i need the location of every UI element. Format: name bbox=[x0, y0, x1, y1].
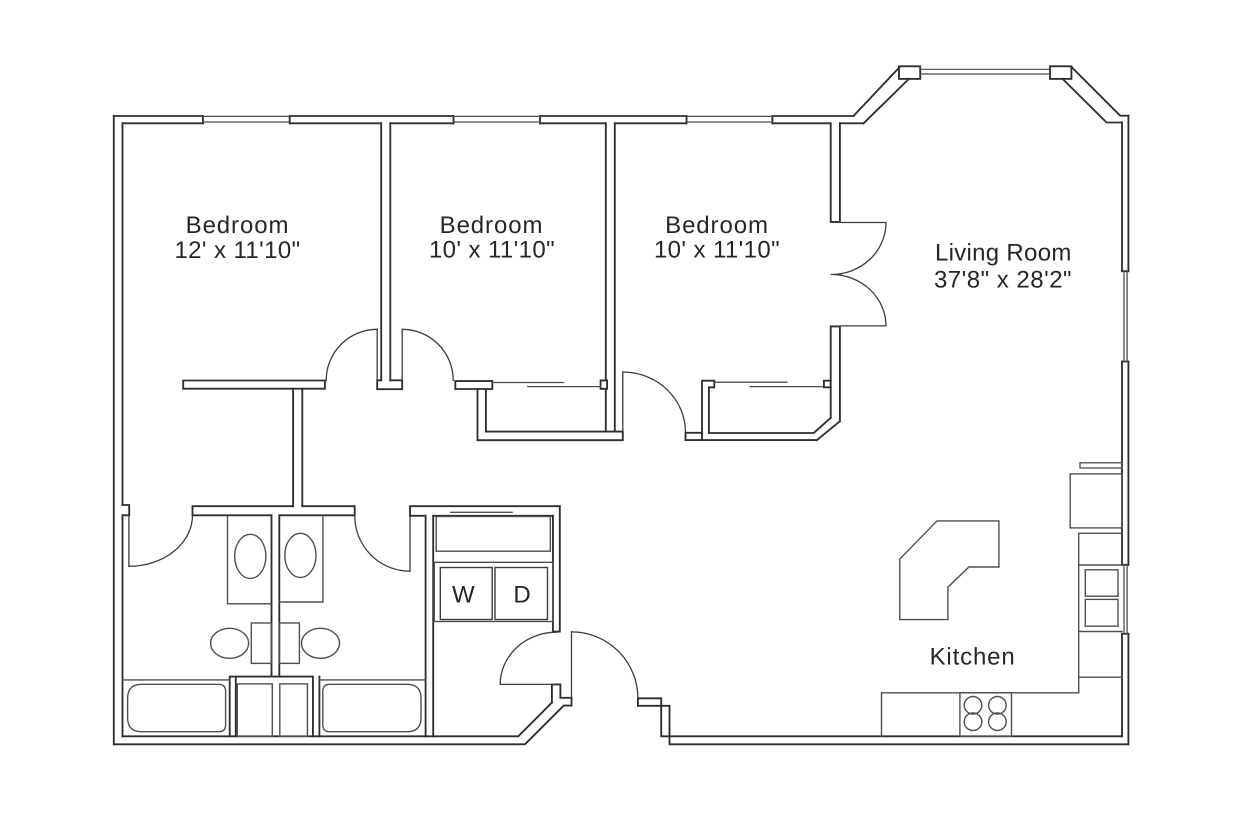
svg-text:Kitchen: Kitchen bbox=[930, 644, 1016, 671]
svg-text:10' x 11'10": 10' x 11'10" bbox=[429, 237, 555, 264]
svg-text:37'8" x 28'2": 37'8" x 28'2" bbox=[934, 267, 1072, 294]
svg-text:12' x 11'10": 12' x 11'10" bbox=[174, 237, 300, 264]
svg-text:D: D bbox=[513, 582, 530, 609]
svg-text:Living Room: Living Room bbox=[935, 239, 1072, 266]
svg-text:Bedroom: Bedroom bbox=[665, 212, 769, 239]
svg-text:Bedroom: Bedroom bbox=[440, 212, 544, 239]
svg-text:W: W bbox=[452, 582, 475, 609]
svg-text:Bedroom: Bedroom bbox=[186, 212, 290, 239]
svg-text:10' x 11'10": 10' x 11'10" bbox=[654, 237, 780, 264]
